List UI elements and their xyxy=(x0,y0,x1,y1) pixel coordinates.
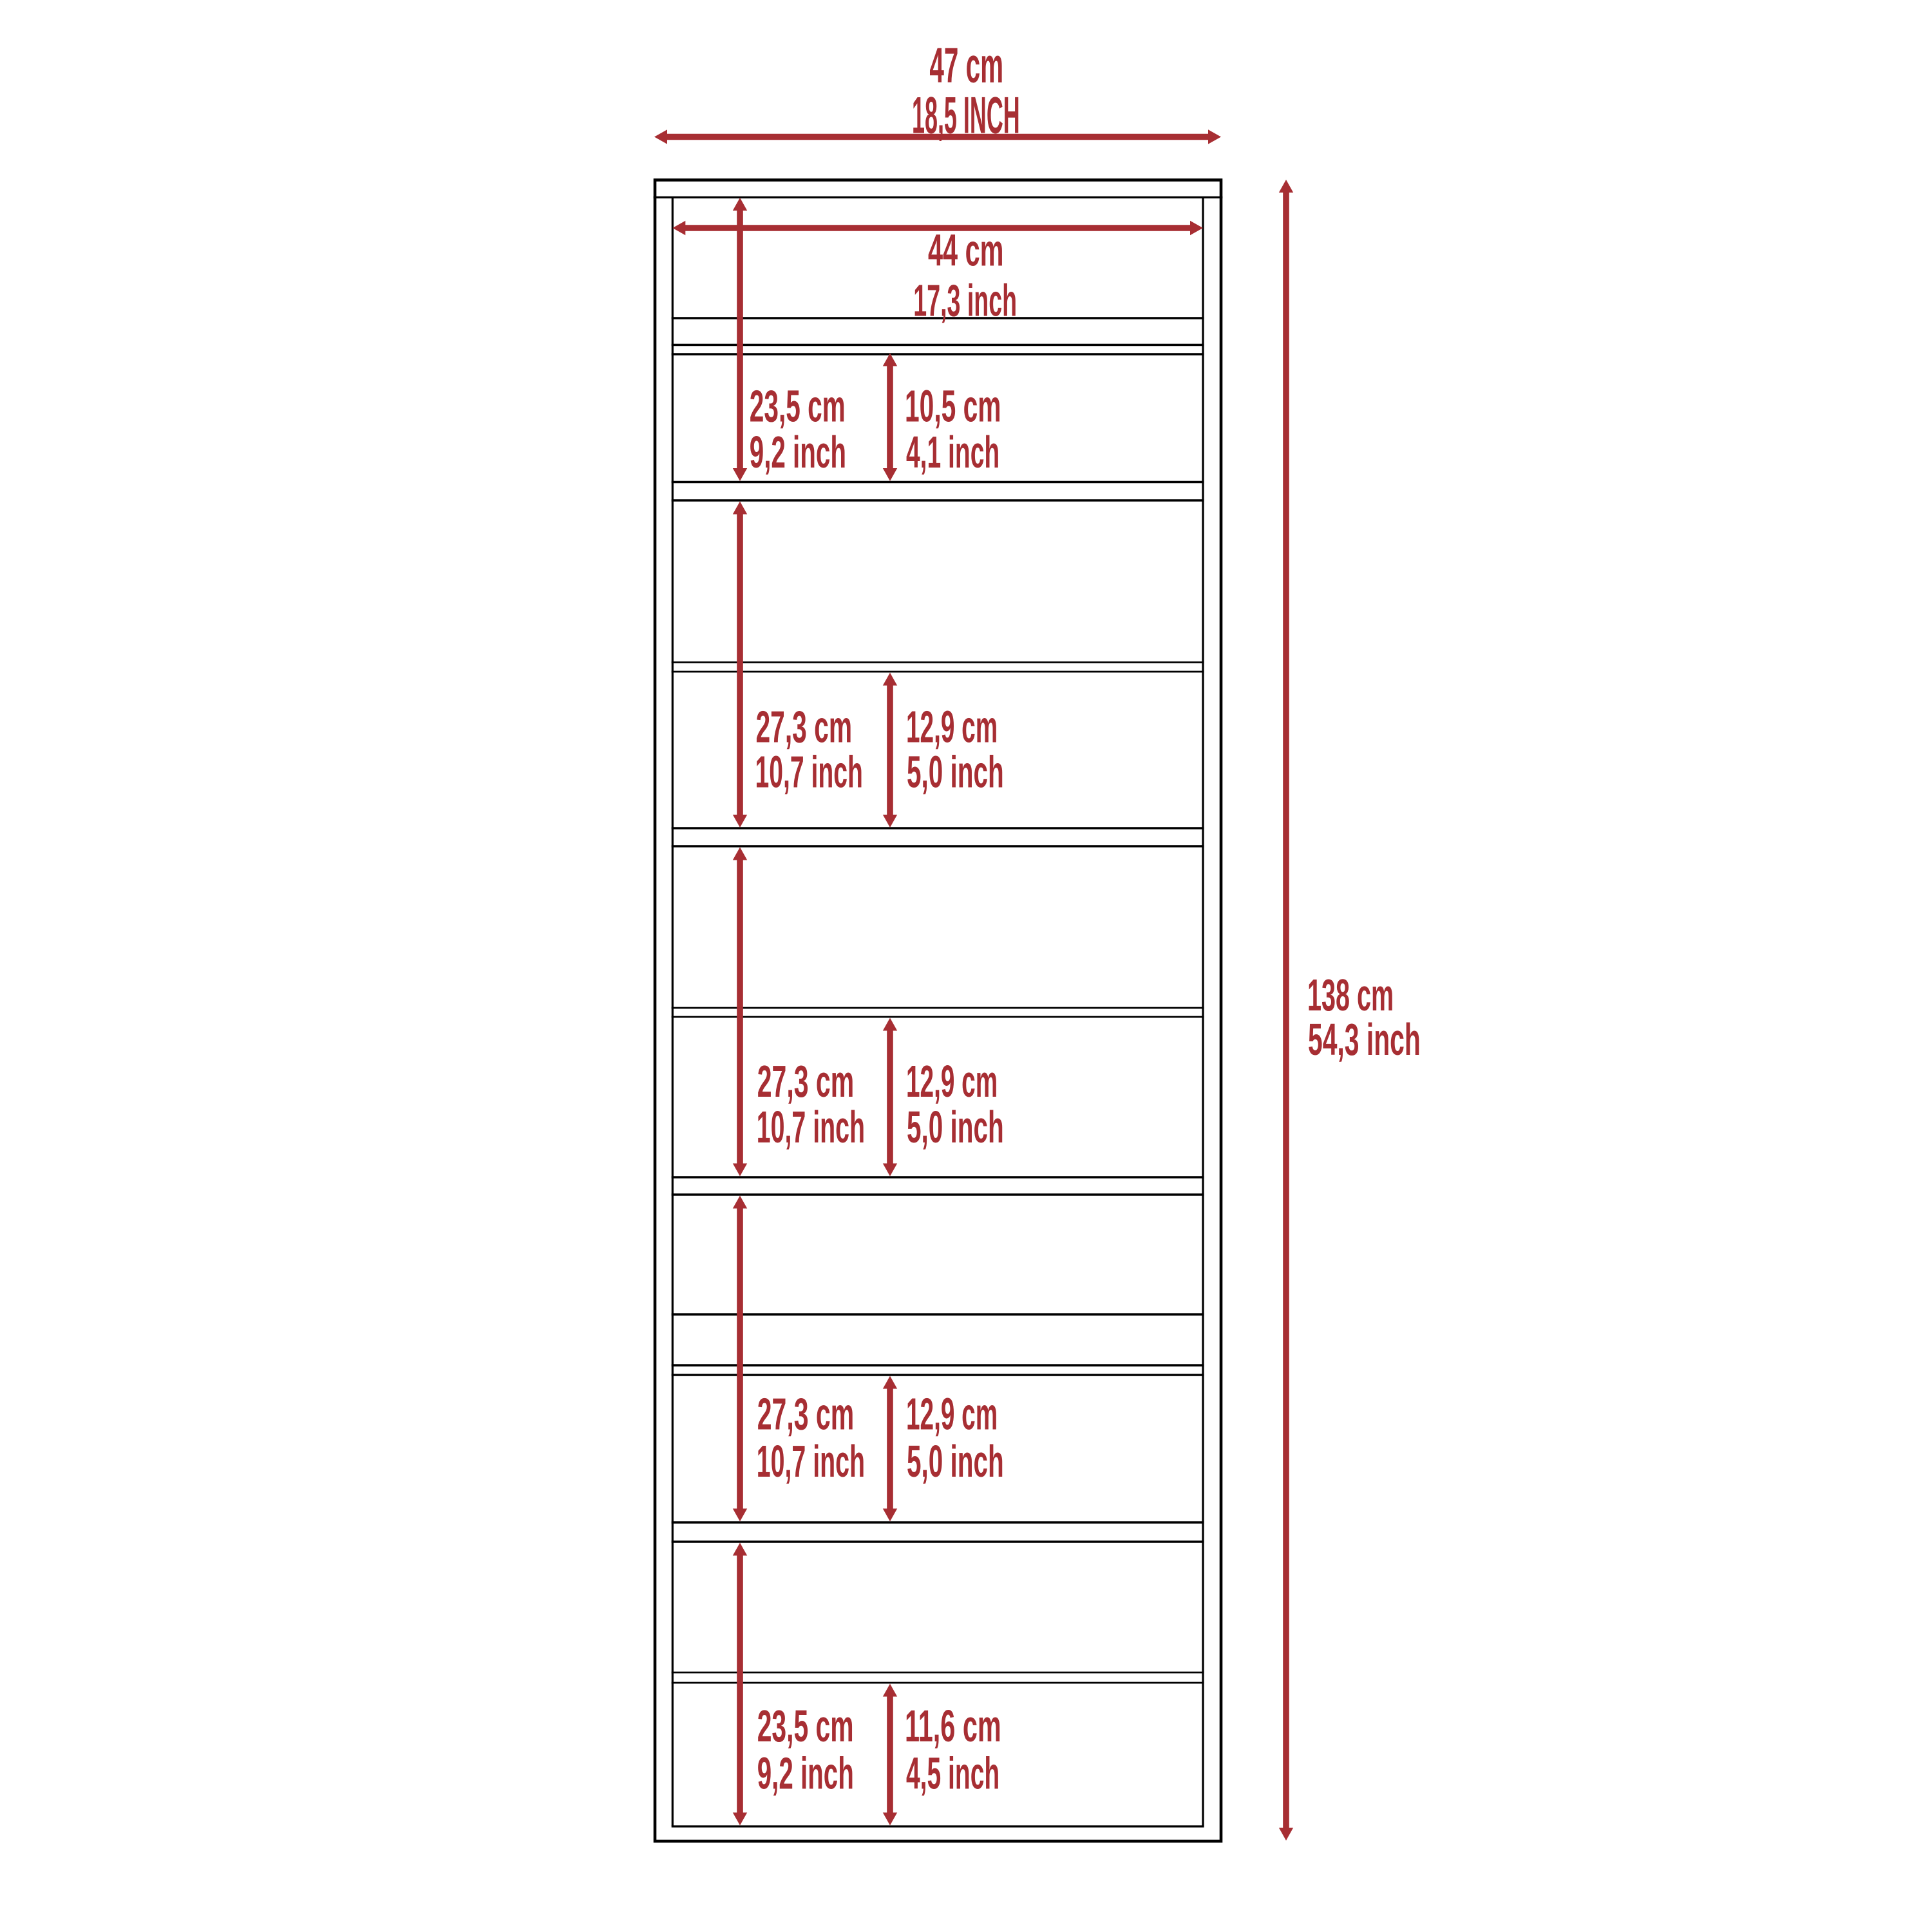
svg-text:44 cm: 44 cm xyxy=(928,225,1004,276)
svg-text:23,5 cm: 23,5 cm xyxy=(750,381,846,431)
svg-text:5,0 inch: 5,0 inch xyxy=(907,1437,1004,1487)
svg-text:138 cm: 138 cm xyxy=(1307,971,1394,1021)
svg-text:9,2 inch: 9,2 inch xyxy=(757,1748,854,1799)
svg-text:17,3 inch: 17,3 inch xyxy=(913,275,1017,326)
svg-text:47 cm: 47 cm xyxy=(929,38,1003,93)
svg-text:4,1 inch: 4,1 inch xyxy=(906,428,999,478)
svg-text:12,9 cm: 12,9 cm xyxy=(906,1388,998,1439)
svg-text:23,5 cm: 23,5 cm xyxy=(757,1701,854,1752)
svg-text:27,3 cm: 27,3 cm xyxy=(757,1389,854,1439)
svg-text:11,6 cm: 11,6 cm xyxy=(905,1701,1001,1752)
svg-text:12,9 cm: 12,9 cm xyxy=(906,701,998,752)
svg-text:12,9 cm: 12,9 cm xyxy=(906,1056,998,1106)
svg-text:54,3 inch: 54,3 inch xyxy=(1308,1015,1421,1065)
svg-text:10,7 inch: 10,7 inch xyxy=(757,1437,865,1488)
svg-text:27,3 cm: 27,3 cm xyxy=(756,702,853,752)
svg-text:10,7 inch: 10,7 inch xyxy=(757,1103,865,1153)
svg-text:4,5 inch: 4,5 inch xyxy=(906,1749,999,1799)
svg-text:9,2 inch: 9,2 inch xyxy=(750,427,846,477)
svg-text:27,3 cm: 27,3 cm xyxy=(757,1057,854,1107)
svg-text:10,5 cm: 10,5 cm xyxy=(905,381,1001,431)
svg-text:5,0 inch: 5,0 inch xyxy=(907,747,1004,797)
svg-text:5,0 inch: 5,0 inch xyxy=(907,1103,1004,1153)
svg-text:18,5 INCH: 18,5 INCH xyxy=(912,86,1020,144)
svg-text:10,7 inch: 10,7 inch xyxy=(755,748,863,798)
